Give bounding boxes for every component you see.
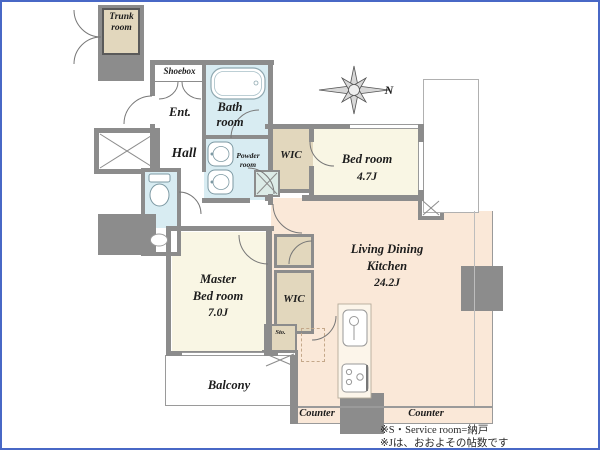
wall-segment [150,60,274,65]
hall-label: Hall [162,145,206,161]
window [182,352,264,356]
bedroom-size: 4.7J [313,171,421,185]
door-arc [182,82,201,99]
wall-segment [150,124,155,170]
door-arc [74,37,101,64]
compass-n-label: N [381,83,397,97]
wall-segment [302,195,424,201]
door-arc [159,82,178,99]
wall-segment [166,226,274,231]
washing-machine-space [254,170,280,197]
compass-icon [319,66,389,114]
master-size: 7.0J [171,307,265,321]
bedroom-label: Bed room [313,152,421,167]
wall-segment [202,198,250,203]
balcony-label: Balcony [189,378,269,393]
wic-upper-label: WIC [269,149,313,162]
ldk-label-line2: Kitchen [331,259,443,274]
living-window-line [474,211,475,407]
door-arc [179,192,201,214]
wall-segment [204,135,268,139]
pillar [340,393,384,434]
storage-label: Sto. [264,329,297,337]
door-arc [74,10,101,37]
footnote-line1: ※S・Service room=納戸 [380,424,595,437]
shoebox-label: Shoebox [154,66,205,77]
footnotes: ※S・Service room=納戸 ※Jは、おおよその帖数です [380,424,595,450]
pillar [461,266,503,311]
counter-left-label: Counter [295,408,339,420]
door-arc [124,96,152,124]
wic-lower-label: WIC [274,293,314,306]
master-label-line1: Master [171,272,265,287]
bath-room-label: Bath room [204,100,256,130]
closet-above-wic [274,234,314,268]
refrigerator-space [301,328,325,362]
void-outside-bedroom [423,79,479,213]
powder-room-label: Powder room [230,152,266,170]
master-label-line2: Bed room [171,289,265,304]
entrance-label: Ent. [154,105,206,120]
window [350,124,418,129]
wall-segment [265,195,273,201]
trunk-room-label: Trunk room [103,12,140,34]
ldk-size: 24.2J [331,277,443,291]
floor-plan: Trunk room Shoebox Bath room Ent. Hall P… [0,0,600,450]
pillar [98,214,156,255]
counter-right-label: Counter [400,408,452,420]
ldk-label-line1: Living Dining [331,242,443,257]
footnote-line2: ※Jは、おおよその帖数です [380,437,595,450]
wall-segment [309,129,314,142]
